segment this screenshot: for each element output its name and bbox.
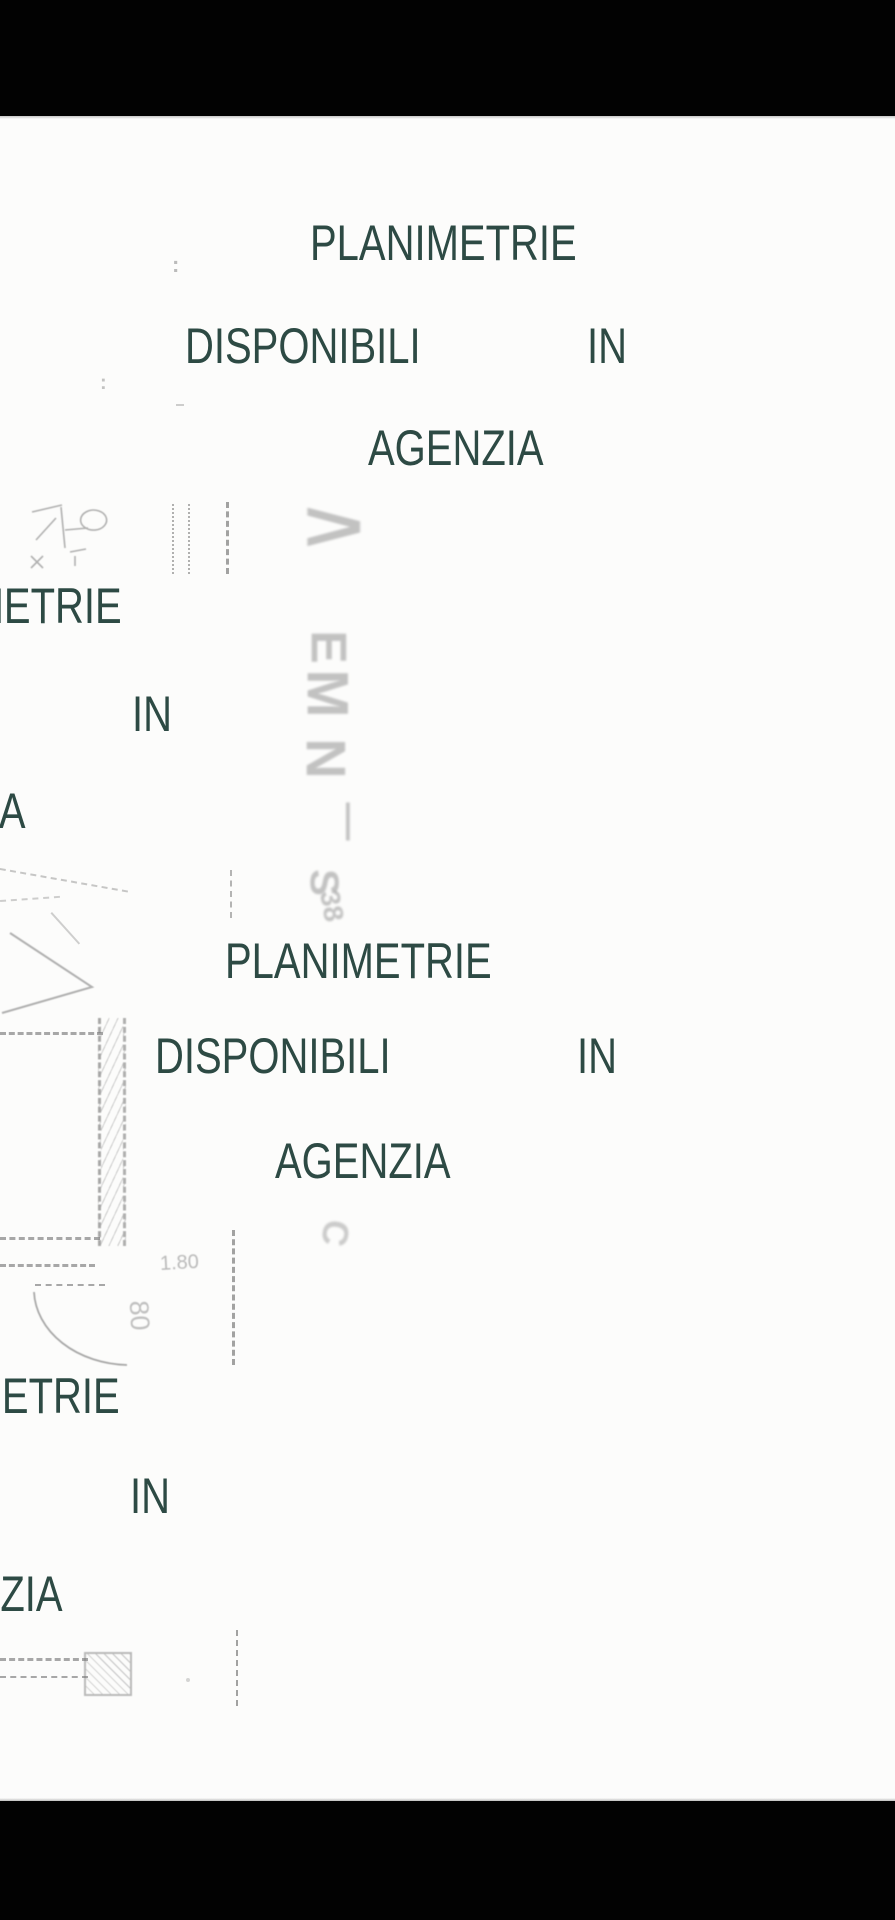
wall-horizontal-3 <box>0 1264 95 1267</box>
speck-dash <box>176 404 184 406</box>
stamp-letter-m: M <box>294 669 361 717</box>
stamp-arrow-glyph: > <box>303 492 364 560</box>
wall-dashed-segment-a <box>226 502 229 574</box>
diag-line-2 <box>0 896 60 902</box>
diag-line-1 <box>0 868 128 893</box>
fixtures-sketch <box>28 498 133 578</box>
speck-colon-1: : <box>172 252 179 278</box>
watermark-agenzia-4: AGENZIA <box>0 1569 63 1619</box>
wall-horizontal-2 <box>0 1237 100 1240</box>
wall-horizontal-6 <box>0 1676 88 1678</box>
wall-horizontal-5 <box>0 1658 88 1661</box>
wall-horizontal-1 <box>0 1032 103 1035</box>
watermark-disponibili-1: DISPONIBILI <box>185 321 421 371</box>
scanned-floorplan-page: PLANIMETRIE DISPONIBILI IN AGENZIA PLANI… <box>0 0 895 1920</box>
watermark-in-3: IN <box>577 1031 617 1081</box>
stamp-dash: — <box>328 803 371 841</box>
wall-vertical-strip <box>98 1018 126 1246</box>
watermark-planimetrie-2: PLANIMETRIE <box>0 581 122 631</box>
watermark-in-2: IN <box>132 689 172 739</box>
scan-seam-top <box>0 116 895 119</box>
watermark-planimetrie-3: PLANIMETRIE <box>225 936 492 986</box>
watermark-in-1: IN <box>587 321 627 371</box>
letterbox-bottom-bar <box>0 1801 895 1920</box>
wall-dashed-segment-c <box>232 1230 235 1365</box>
wall-hatch-box <box>84 1652 132 1696</box>
wall-dashed-segment-b <box>230 870 232 918</box>
stamp-letter-n: N <box>294 738 359 778</box>
stamp-letter-c: C <box>312 1217 358 1250</box>
watermark-agenzia-1: AGENZIA <box>368 423 544 473</box>
wall-corner-lines <box>0 925 100 1025</box>
watermark-disponibili-3: DISPONIBILI <box>155 1031 391 1081</box>
wall-dashed-segment-d <box>236 1630 238 1706</box>
watermark-planimetrie-4: PLANIMETRIE <box>0 1371 120 1421</box>
door-swing-arc <box>28 1286 133 1371</box>
speck-dot <box>186 1678 190 1682</box>
speck-colon-2: : <box>100 372 107 395</box>
watermark-agenzia-2: AGENZIA <box>0 786 26 836</box>
stamp-digits: 38 <box>313 888 350 924</box>
stamp-letter-e: E <box>300 630 358 663</box>
watermark-in-4: IN <box>130 1471 170 1521</box>
wall-dotted-pair <box>172 504 190 574</box>
letterbox-top-bar <box>0 0 895 116</box>
watermark-planimetrie-1: PLANIMETRIE <box>310 218 577 268</box>
watermark-agenzia-3: AGENZIA <box>275 1136 451 1186</box>
dimension-label-width: 1.80 <box>159 1251 199 1276</box>
